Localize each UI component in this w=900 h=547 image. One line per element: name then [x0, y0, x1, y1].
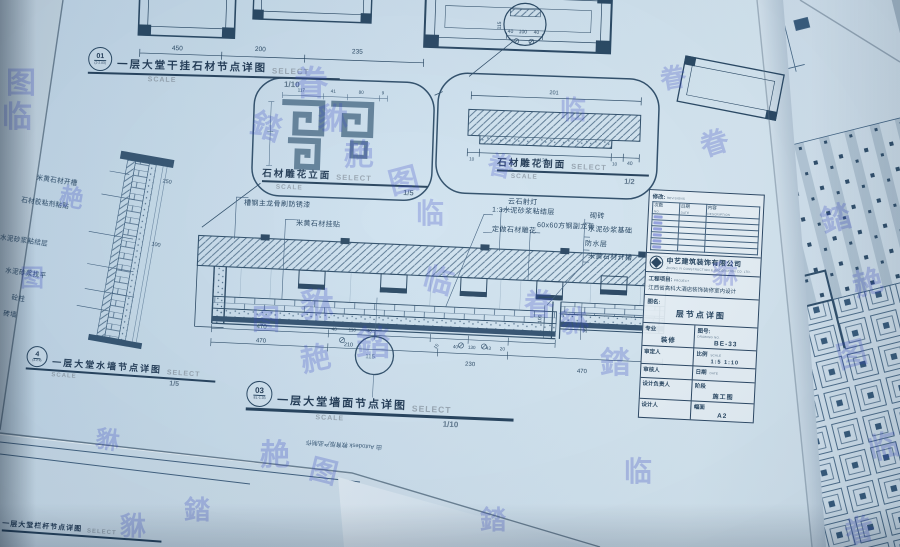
- annotation-mortar-base: 水泥砂浆基础: [588, 224, 633, 236]
- annotation-lw-5: 砼柱: [11, 291, 26, 303]
- annotation-lw-4: 水泥砂浆找平: [5, 264, 47, 280]
- drawing-number-cell: 图号: DRAWING NO. BE-33: [695, 326, 758, 352]
- revisions-table: 次数NO. 日期DATE 内容DESCRIPTION: [650, 201, 760, 255]
- annotation-custom-carving: 定做石材雕花: [492, 224, 537, 236]
- detail-bubble-03: 03 EL-1.03: [246, 380, 273, 407]
- title-block: 修改: REVISIONS 次数NO. 日期DATE 内容DESCRIPTION: [638, 189, 765, 424]
- detail-title-sect: 石材雕花剖面 SELECT SCALE 1/2: [497, 154, 650, 187]
- company-logo: [649, 255, 664, 270]
- left-wall-annotations: 米黄石材开槽 石材胶粘剂粘贴 1:3水泥砂浆粘结层 水泥砂浆找平 砼柱 砖墙: [0, 150, 158, 370]
- elev-scale: 1/5: [403, 188, 414, 197]
- select-stamp: SELECT: [272, 67, 310, 77]
- annotation-lw-1: 米黄石材开槽: [36, 171, 78, 187]
- detail-01-scale: 1/10: [284, 80, 300, 89]
- annotation-steel-keel: 60x60方钢副龙骨: [537, 220, 595, 232]
- design-lead-cell: 设计负责人: [640, 378, 693, 402]
- project-label-en: PROJECT: [674, 278, 690, 283]
- detail-bubble-01: 01 (2-2.03): [88, 47, 113, 72]
- photo-of-blueprints: 一层大堂栏杆节点详图 SELECT: [0, 0, 900, 547]
- annotation-lw-6: 砖墙: [3, 307, 18, 319]
- detail-04-scale: 1/5: [169, 381, 179, 389]
- annotation-stone-groove: 米黄石材开槽: [588, 251, 633, 263]
- sect-title: 石材雕花剖面: [497, 154, 566, 170]
- scale-stamp: SCALE: [276, 184, 303, 194]
- stage-cell: 阶段 施工图: [692, 381, 754, 405]
- discipline-value: 装修: [644, 333, 692, 345]
- select-stamp: SELECT: [571, 162, 607, 172]
- select-stamp: SELECT: [412, 403, 452, 415]
- stage-value: 施工图: [694, 391, 752, 403]
- size-cell: 幅面 A2: [691, 402, 753, 423]
- size-value: A2: [693, 412, 751, 422]
- detail-title-01: 01 (2-2.03) 一层大堂干挂石材节点详图 SELECT SCALE 1/…: [88, 47, 341, 91]
- revisions-label-en: REVISIONS: [667, 196, 685, 201]
- revisions-label: 修改:: [652, 194, 665, 201]
- scale-stamp: SCALE: [511, 173, 538, 183]
- detail-03-scale: 1/10: [443, 419, 459, 429]
- scale-stamp: SCALE: [148, 77, 177, 87]
- titleblock-grid: 专业 装修 图号: DRAWING NO. BE-33 审定人 比例 SCALE…: [639, 323, 757, 422]
- designer-cell: 设计人: [639, 399, 692, 420]
- scale-stamp: SCALE: [315, 414, 344, 424]
- drawing-name-text: 层节点详图: [647, 307, 755, 323]
- sect-scale: 1/2: [624, 177, 635, 186]
- revisions-section: 修改: REVISIONS 次数NO. 日期DATE 内容DESCRIPTION: [647, 190, 764, 258]
- elev-title: 石材雕花立面: [262, 165, 331, 181]
- drawing-number-value: BE-33: [697, 340, 755, 350]
- select-stamp: SELECT: [336, 173, 372, 183]
- project-label: 工程项目:: [648, 276, 672, 283]
- discipline-cell: 专业 装修: [642, 323, 695, 349]
- drawing-name-label: 图名:: [647, 299, 660, 306]
- annotation-brick: 砌砖: [590, 211, 605, 222]
- annotation-lw-3: 1:3水泥砂浆粘结层: [0, 229, 49, 247]
- annotation-stone-cladding: 米黄石材挂贴: [296, 218, 341, 230]
- annotation-lw-2: 石材胶粘剂粘贴: [21, 194, 70, 211]
- detail-title-elev: 石材雕花立面 SELECT SCALE 1/5: [262, 165, 429, 198]
- annotation-waterproof: 防水层: [585, 239, 608, 250]
